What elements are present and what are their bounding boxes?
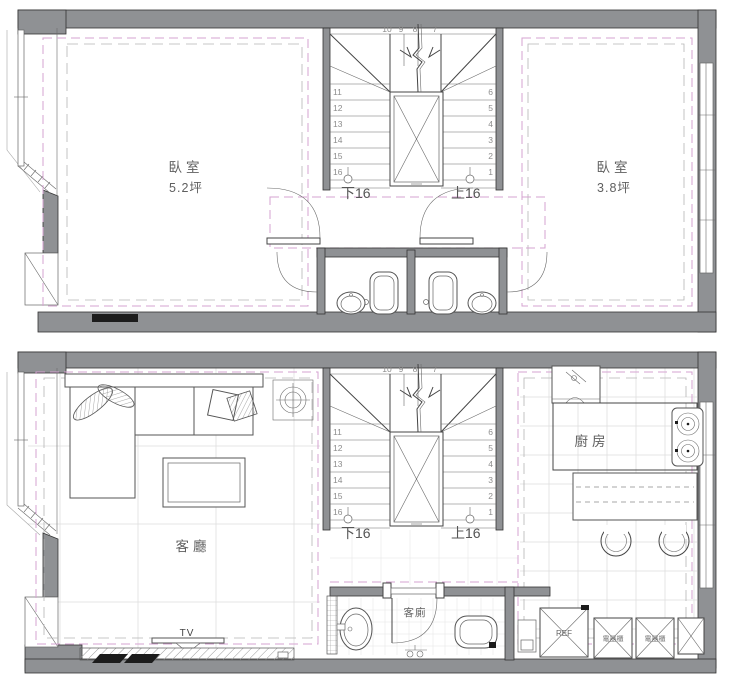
bar-stool xyxy=(601,525,631,556)
ceiling-dashed-lines xyxy=(43,38,692,306)
door-leaf xyxy=(267,238,320,244)
bedroom-left-area: 5.2坪 xyxy=(169,181,203,195)
bar-stool xyxy=(659,525,689,556)
bay-window-left xyxy=(7,372,58,647)
coffee-table xyxy=(163,458,245,507)
wash-basin xyxy=(337,292,365,314)
door-leaf xyxy=(420,238,473,244)
wall-accent xyxy=(92,314,138,322)
window-right xyxy=(698,63,716,273)
door-arc xyxy=(277,252,317,292)
ceiling-fan-icon xyxy=(273,380,313,420)
bedroom-left-label: 臥室 xyxy=(169,159,204,175)
toilet xyxy=(455,616,497,648)
bedroom-right-area: 3.8坪 xyxy=(597,181,631,195)
door-arc xyxy=(267,188,320,238)
appliance-cabinet-label: 電器櫃 xyxy=(645,634,666,643)
upper-floor-plan: 臥室 5.2坪 臥室 3.8坪 xyxy=(7,10,716,332)
floor-plan-page: 10 9 8 7 11 12 13 14 15 16 6 5 4 3 2 1 下… xyxy=(0,0,740,680)
door-post xyxy=(383,583,391,598)
tv-unit xyxy=(152,638,224,648)
bay-window-left xyxy=(7,30,58,305)
door-arc xyxy=(392,598,437,643)
kitchen xyxy=(552,366,703,556)
living-room-label: 客廳 xyxy=(176,538,211,554)
appliance-cabinet-box xyxy=(678,618,704,654)
bedroom-right-label: 臥室 xyxy=(597,159,632,175)
stove xyxy=(672,408,703,466)
kitchen-label: 廚房 xyxy=(575,433,610,449)
island-counter xyxy=(573,473,697,520)
wash-basin xyxy=(468,292,496,314)
fridge-label: REF xyxy=(556,629,572,638)
upper-bathrooms xyxy=(277,248,547,314)
tiled-wall xyxy=(327,596,337,654)
appliance-cabinet-label: 電器櫃 xyxy=(603,634,624,643)
door-post xyxy=(436,583,444,598)
lower-floor-plan: 客廳 廚房 客廁 TV REF 電器櫃 電器櫃 xyxy=(7,352,716,673)
floor-drain xyxy=(405,645,427,657)
window xyxy=(18,372,24,506)
toilet xyxy=(364,272,399,314)
window xyxy=(700,63,713,273)
kitchen-sink xyxy=(552,366,600,403)
guest-toilet-label: 客廁 xyxy=(404,606,427,619)
floor-plan-drawing: 10 9 8 7 11 12 13 14 15 16 6 5 4 3 2 1 下… xyxy=(0,0,740,680)
guest-toilet xyxy=(327,583,550,660)
window xyxy=(18,30,24,166)
sliding-door xyxy=(391,588,436,594)
appliance-row xyxy=(518,605,704,658)
living-room xyxy=(65,374,313,663)
toilet xyxy=(424,272,458,314)
door-arc xyxy=(507,252,547,292)
wash-basin xyxy=(337,608,372,650)
tv-label: TV xyxy=(180,628,195,639)
